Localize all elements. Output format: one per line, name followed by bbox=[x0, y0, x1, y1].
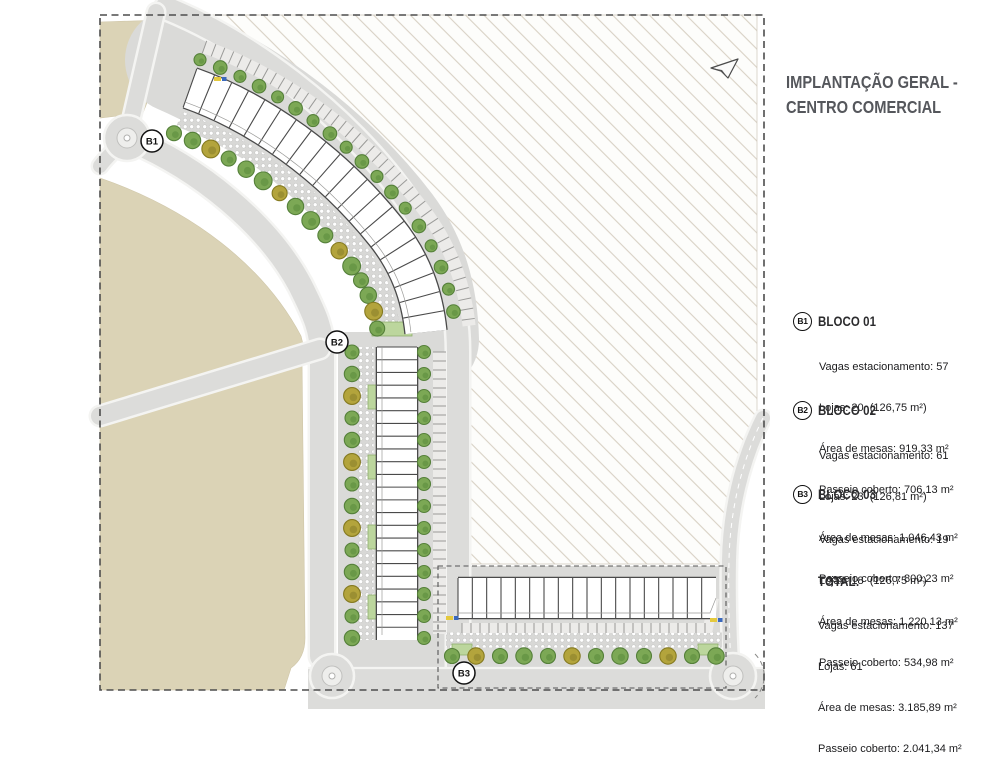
tree-icon bbox=[331, 243, 347, 259]
tree-icon bbox=[418, 566, 431, 579]
tree-icon bbox=[345, 609, 359, 623]
tree-icon bbox=[345, 477, 359, 491]
tree-icon bbox=[412, 219, 426, 233]
tree-icon bbox=[344, 630, 359, 645]
page-title-line2: CENTRO COMERCIAL bbox=[786, 95, 958, 120]
legend-line: Vagas estacionamento: 61 bbox=[819, 450, 958, 464]
site-plan-canvas: B1B2B3 bbox=[0, 0, 770, 709]
tree-icon bbox=[289, 102, 303, 116]
tree-icon bbox=[370, 321, 385, 336]
tree-icon bbox=[418, 544, 431, 557]
tree-icon bbox=[418, 588, 431, 601]
page-title: IMPLANTAÇÃO GERAL - CENTRO COMERCIAL bbox=[786, 70, 958, 120]
legend-total-title: TOTAL: bbox=[818, 574, 940, 589]
legend-line: Vagas estacionamento: 57 bbox=[819, 361, 954, 375]
tree-icon bbox=[418, 368, 431, 381]
tree-icon bbox=[434, 260, 448, 274]
tree-icon bbox=[354, 273, 369, 288]
tree-icon bbox=[365, 302, 383, 320]
tree-icon bbox=[589, 649, 604, 664]
legend-badge-b2: B2 bbox=[793, 401, 812, 420]
tree-icon bbox=[184, 132, 200, 148]
tree-icon bbox=[385, 185, 399, 199]
svg-text:B3: B3 bbox=[458, 668, 470, 679]
tree-icon bbox=[660, 648, 676, 664]
tree-icon bbox=[355, 155, 369, 169]
tree-icon bbox=[360, 287, 376, 303]
tree-icon bbox=[302, 212, 320, 230]
svg-text:B1: B1 bbox=[146, 136, 159, 147]
tree-icon bbox=[272, 186, 287, 201]
tree-icon bbox=[447, 305, 461, 319]
tree-icon bbox=[564, 648, 580, 664]
tree-icon bbox=[344, 498, 359, 513]
tree-icon bbox=[344, 388, 361, 405]
tree-icon bbox=[221, 151, 236, 166]
page-title-line1: IMPLANTAÇÃO GERAL - bbox=[786, 70, 958, 95]
tree-icon bbox=[493, 649, 508, 664]
tree-icon bbox=[445, 649, 460, 664]
tree-icon bbox=[541, 649, 556, 664]
tree-icon bbox=[307, 115, 319, 127]
tree-icon bbox=[418, 478, 431, 491]
tree-icon bbox=[637, 649, 652, 664]
tree-icon bbox=[425, 240, 437, 252]
tree-icon bbox=[344, 586, 361, 603]
tree-icon bbox=[418, 610, 431, 623]
legend-badge-b1: B1 bbox=[793, 312, 812, 331]
legend-block-03-title: BLOCO 03 bbox=[818, 487, 876, 502]
tree-icon bbox=[344, 564, 359, 579]
tree-icon bbox=[194, 54, 206, 66]
tree-icon bbox=[399, 202, 411, 214]
tree-icon bbox=[344, 454, 361, 471]
tree-icon bbox=[252, 79, 266, 93]
tree-icon bbox=[202, 140, 220, 158]
tree-icon bbox=[166, 126, 181, 141]
tree-icon bbox=[418, 632, 431, 645]
tree-icon bbox=[345, 543, 359, 557]
tree-icon bbox=[418, 456, 431, 469]
tree-icon bbox=[318, 228, 333, 243]
tree-icon bbox=[254, 172, 272, 190]
tree-icon bbox=[344, 520, 361, 537]
map-badge-b2: B2 bbox=[326, 331, 348, 353]
tree-icon bbox=[516, 648, 532, 664]
tree-icon bbox=[343, 257, 361, 275]
map-badge-b1: B1 bbox=[141, 130, 163, 152]
legend-block-02-title: BLOCO 02 bbox=[818, 403, 876, 418]
legend-line: Vagas estacionamento: 137 bbox=[818, 620, 962, 634]
legend-total: TOTAL: Vagas estacionamento: 137 Lojas: … bbox=[818, 574, 962, 783]
tree-icon bbox=[371, 170, 383, 182]
tree-icon bbox=[340, 141, 352, 153]
tree-icon bbox=[418, 500, 431, 513]
tree-icon bbox=[708, 648, 724, 664]
tree-icon bbox=[685, 649, 700, 664]
tree-icon bbox=[418, 434, 431, 447]
tree-icon bbox=[418, 346, 431, 359]
legend-badge-b3: B3 bbox=[793, 485, 812, 504]
tree-icon bbox=[612, 648, 628, 664]
svg-text:B2: B2 bbox=[331, 337, 343, 348]
tree-icon bbox=[287, 198, 303, 214]
tree-icon bbox=[344, 366, 359, 381]
tree-icon bbox=[418, 390, 431, 403]
tree-icon bbox=[442, 283, 454, 295]
map-badge-b3: B3 bbox=[453, 662, 475, 684]
tree-icon bbox=[213, 61, 227, 75]
legend-line: Lojas: 61 bbox=[818, 661, 962, 675]
tree-icon bbox=[238, 161, 254, 177]
tree-icon bbox=[418, 522, 431, 535]
legend-line: Vagas estacionamento: 19 bbox=[819, 534, 958, 548]
tree-icon bbox=[234, 70, 246, 82]
tree-icon bbox=[418, 412, 431, 425]
legend-block-01-title: BLOCO 01 bbox=[818, 314, 876, 329]
tree-icon bbox=[468, 648, 484, 664]
tree-icon bbox=[323, 127, 337, 141]
tree-icon bbox=[345, 411, 359, 425]
tree-icon bbox=[344, 432, 359, 447]
legend-line: Passeio coberto: 2.041,34 m² bbox=[818, 743, 962, 757]
tree-icon bbox=[272, 91, 284, 103]
